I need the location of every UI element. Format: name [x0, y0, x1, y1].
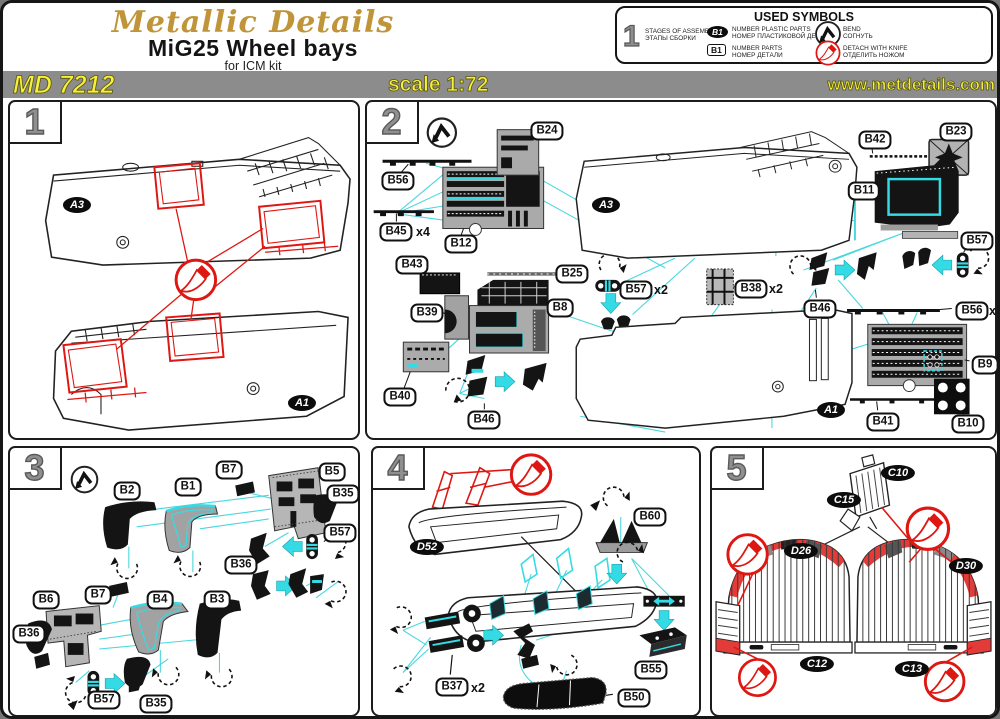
part-label-b41: B41 — [866, 413, 899, 432]
plastic-part-label-d26: D26 — [784, 543, 818, 559]
plastic-part-label-d52: D52 — [410, 539, 444, 555]
plastic-part-symbol: B1 — [707, 26, 728, 38]
part-label-b39: B39 — [410, 304, 443, 323]
detach-knife-icon — [511, 455, 550, 494]
pe-part-symbol: B1 — [707, 44, 726, 56]
part-label-b7-top: B7 — [216, 461, 243, 480]
part-label-b37-mult: x2 — [471, 681, 485, 695]
part-label-b3: B3 — [204, 591, 231, 610]
bend-icon — [428, 119, 456, 147]
step-4-number: 4 — [371, 446, 425, 490]
part-label-b42: B42 — [858, 131, 891, 150]
part-label-b45: B45 — [379, 223, 412, 242]
part-label-b9: B9 — [972, 356, 999, 375]
part-label-b50: B50 — [617, 689, 650, 708]
part-label-b38-mult: x2 — [769, 282, 783, 296]
plastic-part-label-c15: C15 — [827, 492, 861, 508]
bend-caption: BEND СОГНУТЬ — [843, 26, 873, 40]
detach-knife-icon — [907, 508, 948, 549]
step-2-panel: 2 B24 B56 B45 x4 B12 B43 B39 B25 B8 B57 … — [365, 100, 997, 440]
part-label-b8: B8 — [547, 299, 574, 318]
plastic-part-label-a1: A1 — [288, 395, 316, 411]
detach-knife-icon — [176, 260, 216, 300]
instruction-sheet: Metallic Details MiG25 Wheel bays for IC… — [0, 0, 1000, 719]
part-label-b1: B1 — [175, 478, 202, 497]
step-1-number: 1 — [8, 100, 62, 144]
part-label-b38: B38 — [734, 280, 767, 299]
plastic-part-label-a1: A1 — [817, 402, 845, 418]
detach-knife-icon — [728, 535, 767, 574]
step-1-panel: 1 A3 A1 — [8, 100, 360, 440]
part-label-b23: B23 — [939, 123, 972, 142]
detach-knife-icon — [925, 662, 964, 701]
plastic-part-label-c10: C10 — [881, 465, 915, 481]
part-label-b45-mult: x4 — [416, 225, 430, 239]
part-label-b56-x4: B56 — [955, 302, 988, 321]
part-label-b46-right: B46 — [803, 300, 836, 319]
scale-label: scale 1:72 — [388, 73, 488, 97]
part-label-b35-bottom: B35 — [139, 695, 172, 714]
part-label-b46-left: B46 — [467, 411, 500, 430]
detach-knife-icon — [739, 659, 775, 695]
part-label-b57-right: B57 — [323, 524, 356, 543]
stage-symbol-caption: STAGES OF ASSEMBLY ЭТАПЫ СБОРКИ — [645, 28, 717, 42]
part-label-b7-bottom: B7 — [85, 586, 112, 605]
part-label-b43: B43 — [395, 256, 428, 275]
part-label-b10: B10 — [951, 415, 984, 434]
step-5-number: 5 — [710, 446, 764, 490]
step-3-number: 3 — [8, 446, 62, 490]
part-label-b57-bottom: B57 — [87, 691, 120, 710]
part-label-b12: B12 — [444, 235, 477, 254]
part-label-b55: B55 — [634, 661, 667, 680]
plastic-part-label-c12: C12 — [800, 656, 834, 672]
step-4-panel: 4 D52 B60 B37 x2 B55 B50 — [371, 446, 701, 717]
used-symbols-legend: USED SYMBOLS 1 STAGES OF ASSEMBLY ЭТАПЫ … — [615, 6, 993, 64]
website-link[interactable]: www.metdetails.com — [827, 75, 995, 95]
part-label-b37: B37 — [435, 678, 468, 697]
page-title: MiG25 Wheel bays — [3, 35, 503, 62]
legend-title: USED SYMBOLS — [617, 10, 991, 24]
step-1-artwork — [10, 102, 358, 438]
part-label-b56-mult: x4 — [989, 304, 1000, 318]
product-code: MD 7212 — [13, 71, 114, 100]
plastic-part-label-a3: A3 — [592, 197, 620, 213]
part-label-b57-x2: B57 — [619, 281, 652, 300]
bend-icon — [72, 467, 98, 493]
part-label-b11: B11 — [848, 182, 880, 201]
stage-number-symbol: 1 — [623, 22, 640, 52]
part-label-b57-mult: x2 — [654, 283, 668, 297]
info-bar: MD 7212 scale 1:72 www.metdetails.com — [3, 71, 1000, 98]
part-label-b2: B2 — [114, 482, 141, 501]
step-2-number: 2 — [365, 100, 419, 144]
part-label-b60: B60 — [633, 508, 666, 527]
part-label-b40: B40 — [383, 388, 416, 407]
part-label-b6: B6 — [33, 591, 60, 610]
part-label-b56: B56 — [381, 172, 414, 191]
part-label-b57-right: B57 — [960, 232, 993, 251]
part-label-b25: B25 — [555, 265, 588, 284]
detach-knife-icon — [815, 40, 841, 66]
step-2-artwork — [367, 102, 995, 438]
plastic-part-label-c13: C13 — [895, 661, 929, 677]
knife-caption: DETACH WITH KNIFE ОТДЕЛИТЬ НОЖОМ — [843, 45, 908, 59]
part-label-b5: B5 — [319, 463, 346, 482]
plastic-part-label-a3: A3 — [63, 197, 91, 213]
step-5-panel: 5 C10 C15 D26 D30 C12 C13 — [710, 446, 997, 717]
plastic-part-label-d30: D30 — [949, 558, 983, 574]
part-label-b36-right: B36 — [224, 556, 257, 575]
pe-symbol-caption: NUMBER PARTS НОМЕР ДЕТАЛИ — [732, 45, 783, 59]
part-label-b4: B4 — [147, 591, 174, 610]
part-label-b35-right: B35 — [326, 485, 359, 504]
part-label-b24: B24 — [530, 122, 563, 141]
step-3-panel: 3 B2 B1 B7 B5 B35 B57 B36 B6 B7 B4 B3 B3… — [8, 446, 360, 717]
part-label-b36-left: B36 — [12, 625, 45, 644]
